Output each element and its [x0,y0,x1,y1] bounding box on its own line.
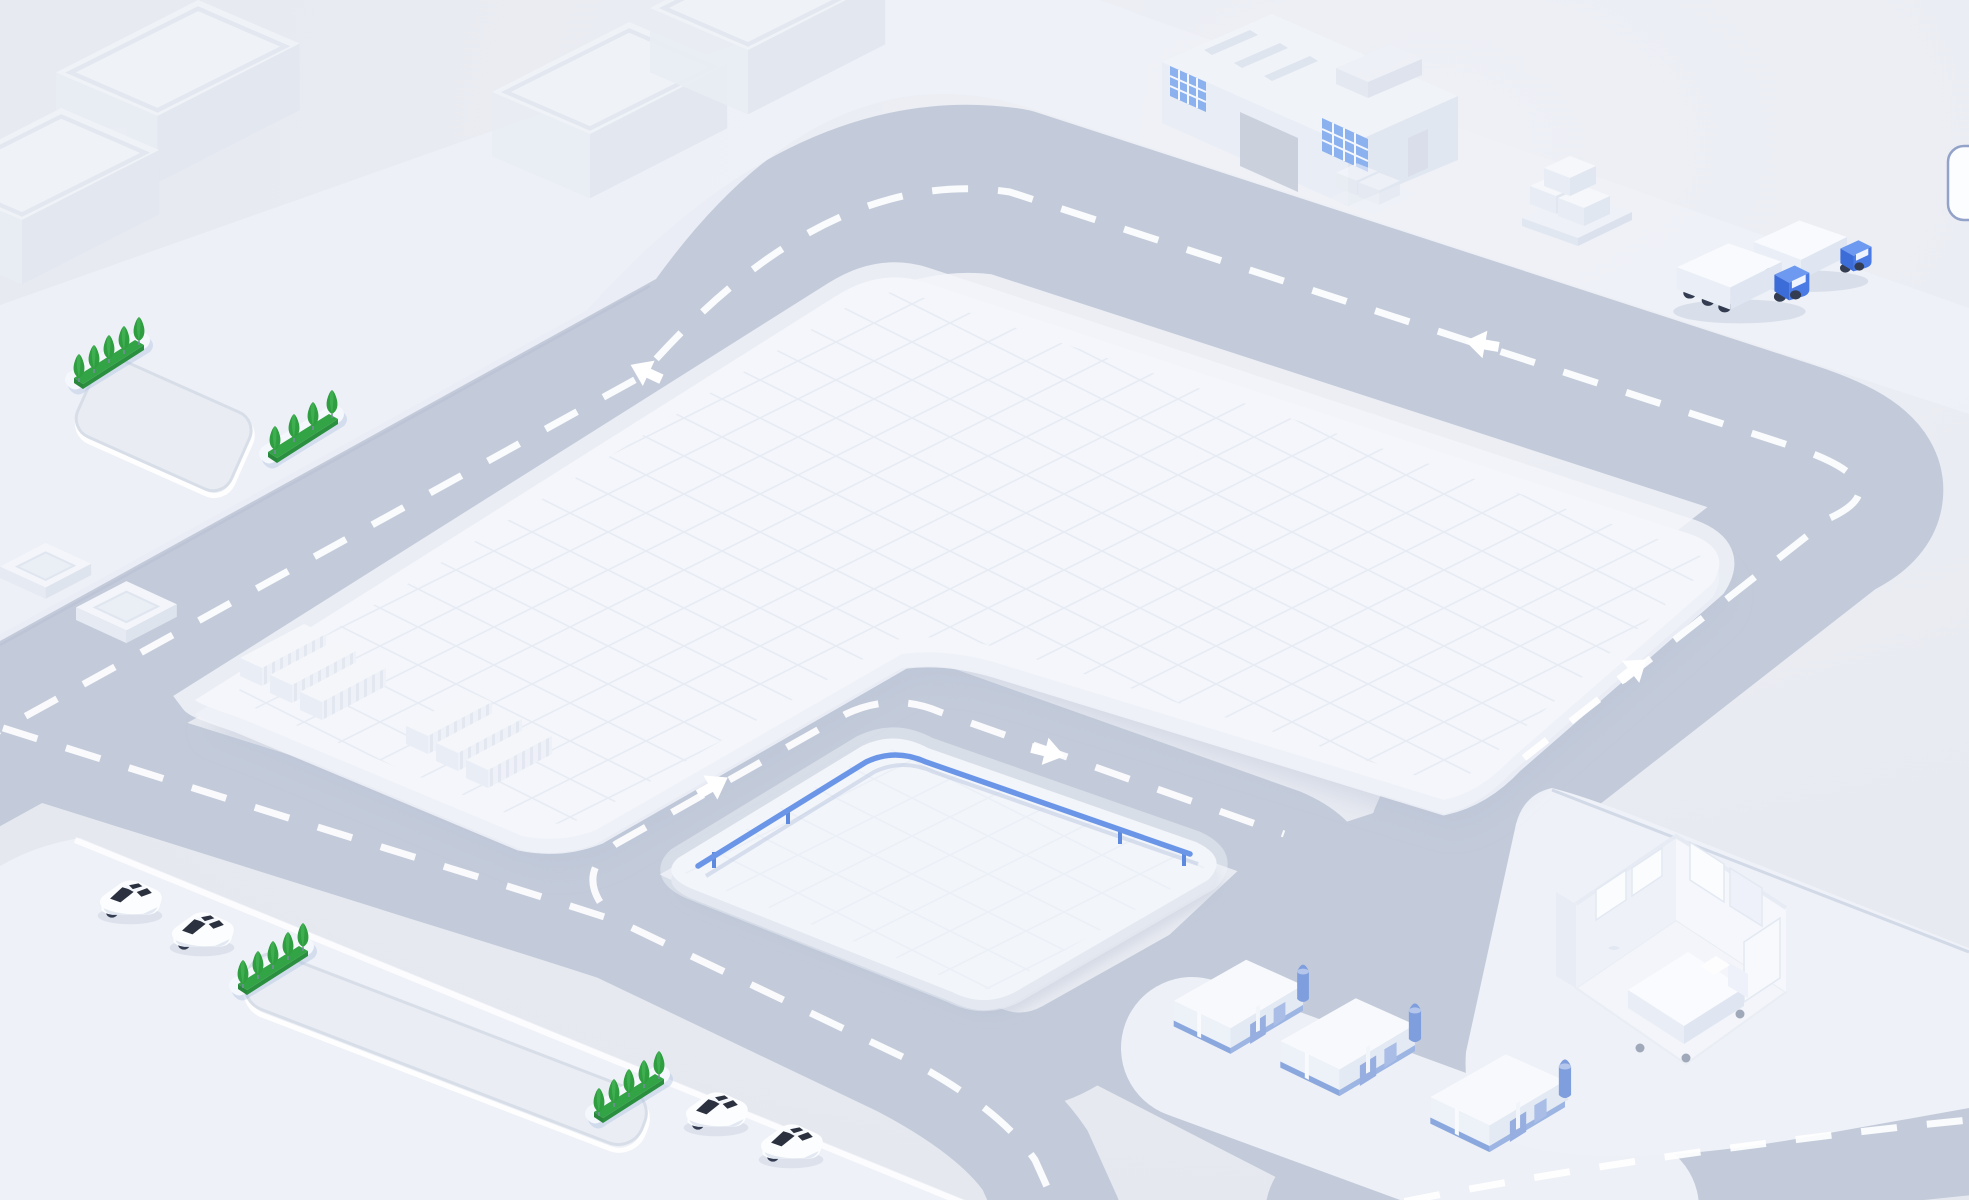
isometric-park-canvas: Isometric smart logistics park illustrat… [0,0,1969,1200]
edge-control-pill[interactable]: partially visible rounded control at rig… [1948,146,1969,220]
scene-stage: Isometric smart logistics park illustrat… [0,0,1969,1200]
